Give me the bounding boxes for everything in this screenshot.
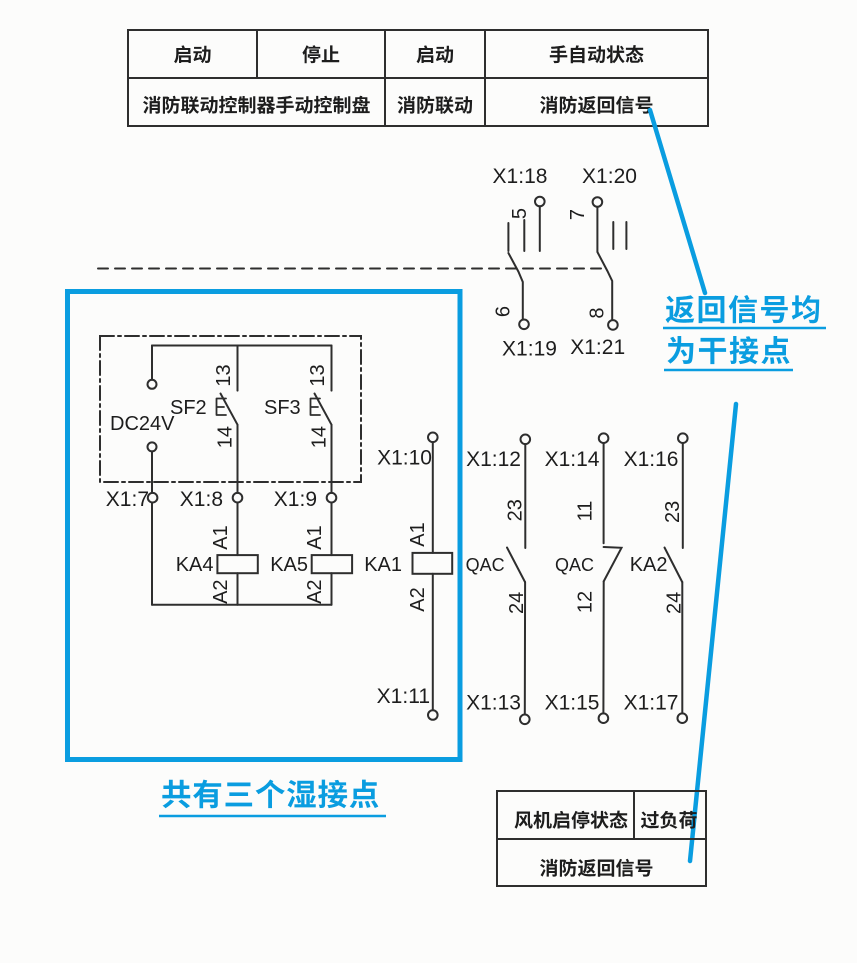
svg-text:KA1: KA1: [364, 554, 402, 576]
svg-text:A1: A1: [407, 522, 429, 546]
svg-text:5: 5: [509, 208, 531, 219]
svg-text:8: 8: [586, 307, 608, 318]
svg-text:X1:14: X1:14: [545, 448, 600, 471]
svg-text:14: 14: [308, 426, 330, 448]
svg-text:KA2: KA2: [630, 554, 668, 576]
svg-text:X1:16: X1:16: [624, 448, 679, 471]
svg-text:KA5: KA5: [270, 554, 308, 576]
svg-text:A1: A1: [210, 525, 232, 549]
svg-text:SF2: SF2: [170, 397, 207, 419]
svg-text:X1:19: X1:19: [502, 338, 557, 361]
svg-text:6: 6: [493, 306, 515, 317]
svg-text:X1:7: X1:7: [106, 488, 149, 511]
svg-text:X1:20: X1:20: [582, 165, 637, 188]
svg-text:14: 14: [214, 426, 236, 448]
svg-text:DC24V: DC24V: [110, 413, 175, 435]
svg-text:QAC: QAC: [466, 555, 505, 575]
svg-text:13: 13: [307, 364, 329, 386]
svg-text:X1:21: X1:21: [570, 336, 625, 359]
svg-text:X1:9: X1:9: [274, 488, 317, 511]
svg-text:QAC: QAC: [555, 555, 594, 575]
svg-text:23: 23: [504, 499, 526, 521]
svg-text:KA4: KA4: [176, 554, 214, 576]
svg-text:24: 24: [506, 592, 528, 614]
svg-text:23: 23: [662, 501, 684, 523]
svg-text:X1:10: X1:10: [377, 447, 432, 470]
svg-text:A2: A2: [407, 587, 429, 611]
svg-text:A2: A2: [210, 579, 232, 603]
svg-text:A2: A2: [304, 579, 326, 603]
svg-text:24: 24: [664, 592, 686, 614]
svg-text:X1:18: X1:18: [493, 165, 548, 188]
svg-text:12: 12: [574, 591, 596, 613]
svg-text:X1:17: X1:17: [624, 692, 679, 715]
svg-text:13: 13: [213, 364, 235, 386]
svg-text:X1:12: X1:12: [466, 448, 521, 471]
svg-text:X1:8: X1:8: [180, 488, 223, 511]
svg-text:7: 7: [567, 209, 589, 220]
svg-text:X1:11: X1:11: [377, 685, 430, 708]
svg-text:X1:15: X1:15: [545, 692, 600, 715]
svg-text:11: 11: [574, 501, 596, 522]
svg-text:X1:13: X1:13: [466, 692, 521, 715]
svg-text:SF3: SF3: [264, 397, 301, 419]
svg-text:A1: A1: [304, 525, 326, 549]
